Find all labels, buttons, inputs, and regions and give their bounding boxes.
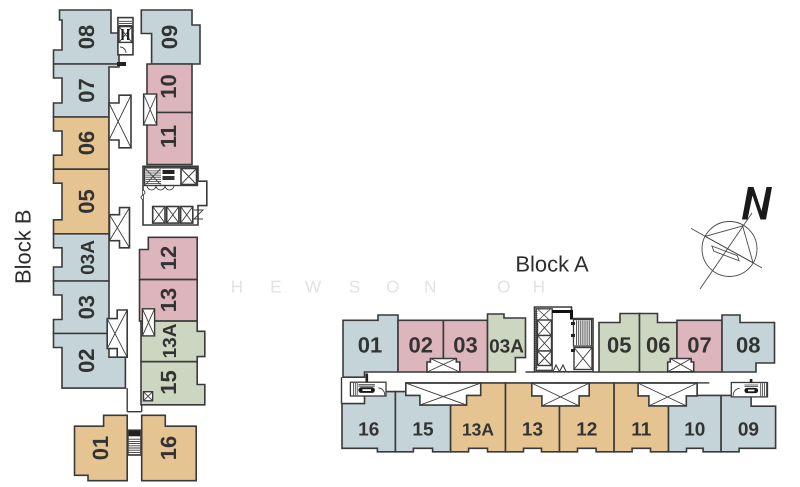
svg-text:02: 02 xyxy=(74,348,99,372)
svg-text:13A: 13A xyxy=(160,323,181,358)
svg-text:H: H xyxy=(533,277,545,296)
svg-text:Block A: Block A xyxy=(515,252,589,277)
svg-text:09: 09 xyxy=(157,25,182,49)
svg-text:W: W xyxy=(305,277,321,296)
svg-text:02: 02 xyxy=(408,333,432,358)
svg-text:05: 05 xyxy=(74,189,99,213)
svg-text:03A: 03A xyxy=(489,337,524,358)
svg-text:06: 06 xyxy=(646,333,670,358)
svg-text:H: H xyxy=(231,277,243,296)
svg-text:06: 06 xyxy=(74,131,99,155)
svg-text:Block B: Block B xyxy=(11,209,36,284)
svg-text:08: 08 xyxy=(74,25,99,49)
svg-text:O: O xyxy=(497,277,510,296)
svg-text:03: 03 xyxy=(453,333,477,358)
svg-text:O: O xyxy=(386,277,399,296)
svg-text:15: 15 xyxy=(156,370,181,394)
svg-text:16: 16 xyxy=(358,420,379,441)
svg-text:07: 07 xyxy=(687,333,711,358)
svg-text:03: 03 xyxy=(74,295,99,319)
svg-text:01: 01 xyxy=(358,333,382,358)
svg-text:13A: 13A xyxy=(462,420,494,440)
svg-text:10: 10 xyxy=(156,74,181,98)
svg-text:01: 01 xyxy=(88,436,113,460)
svg-text:16: 16 xyxy=(156,436,181,460)
svg-text:05: 05 xyxy=(607,333,631,358)
svg-text:E: E xyxy=(270,277,281,296)
svg-text:13: 13 xyxy=(522,420,543,441)
svg-text:N: N xyxy=(424,277,436,296)
svg-text:13: 13 xyxy=(156,288,181,312)
svg-text:11: 11 xyxy=(156,125,181,148)
svg-text:09: 09 xyxy=(738,420,759,441)
svg-text:11: 11 xyxy=(631,420,652,441)
svg-text:07: 07 xyxy=(74,78,99,102)
svg-text:S: S xyxy=(349,277,360,296)
svg-text:12: 12 xyxy=(156,246,181,270)
svg-text:12: 12 xyxy=(576,420,597,441)
svg-text:08: 08 xyxy=(736,333,760,358)
svg-text:15: 15 xyxy=(412,420,434,441)
svg-text:03A: 03A xyxy=(78,240,99,275)
svg-text:10: 10 xyxy=(684,420,705,441)
